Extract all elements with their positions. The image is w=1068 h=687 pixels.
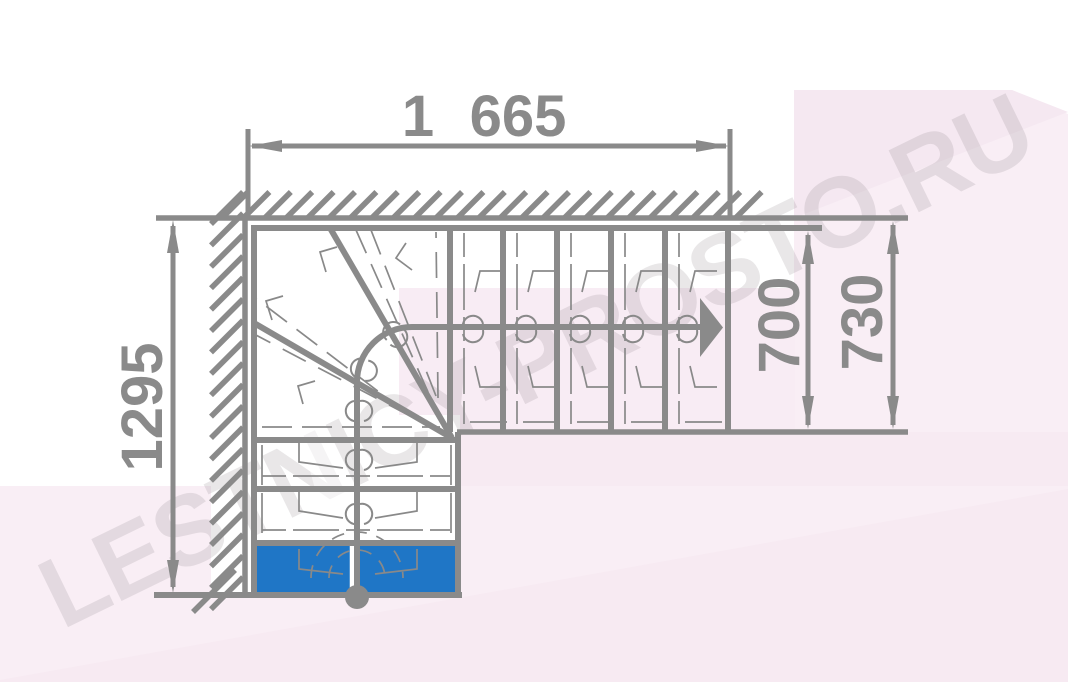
svg-text:1295: 1295: [110, 342, 175, 471]
svg-text:730: 730: [830, 274, 895, 371]
svg-text:700: 700: [747, 277, 812, 374]
svg-text:665: 665: [470, 84, 567, 149]
svg-text:1: 1: [402, 84, 434, 149]
